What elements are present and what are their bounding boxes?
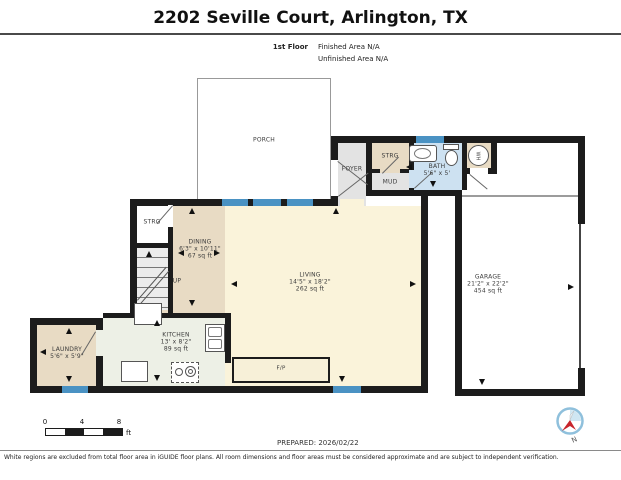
wall [30,386,428,393]
room-area: 262 sq ft [289,286,331,293]
room-name: LAUNDRY [50,346,84,353]
sink-basin [208,339,222,349]
wall [455,196,462,396]
porch-label: PORCH [253,137,275,144]
stairs-up-arrow [146,251,152,257]
dimension-arrow [339,376,345,382]
room-name: DINING [179,239,221,246]
finished-area: Finished Area N/A [318,43,380,51]
dimension-arrow [189,208,195,214]
wall [366,190,462,196]
room-area: 89 sq ft [161,346,192,353]
dimension-arrow [406,164,412,170]
room-dims: 6'3" x 10'11" [179,246,221,253]
room-name: BATH [424,163,451,170]
mud-label: MUD [383,179,398,186]
window [416,136,444,143]
vanity-sink [414,148,431,159]
door-opening [409,170,414,188]
door-opening [331,160,338,196]
wall [421,196,428,393]
dimension-arrow [333,208,339,214]
door-opening [340,199,364,206]
prepared-date: PREPARED: 2026/02/22 [277,439,359,447]
foyer-room [338,143,366,206]
dimension-arrow [568,284,574,290]
scale-tick: 8 [117,418,121,426]
floorplan-page: 2202 Seville Court, Arlington, TX 1st Fl… [0,0,621,480]
window [222,199,248,206]
wall [462,143,467,190]
wall [455,389,585,396]
compass-icon: N [552,404,588,446]
title-divider [0,33,621,35]
kitchen-island [121,361,148,382]
room-dims: 14'5" x 18'2" [289,279,331,286]
stairs-up-label: UP [173,278,181,285]
door-opening [470,168,488,174]
garage-label: GARAGE 21'2" x 22'2" 454 sq ft [467,274,509,295]
page-title: 2202 Seville Court, Arlington, TX [0,8,621,28]
water-heater: WH [468,145,489,166]
dimension-arrow [479,379,485,385]
stove-burner [175,368,183,376]
wall [578,136,585,224]
footer-divider [0,450,621,451]
room-dims: 5'6" x 5' [424,170,451,177]
unfinished-area: Unfinished Area N/A [318,55,388,63]
room-name: LIVING [289,272,331,279]
garage-interior-line [462,195,578,197]
living-label: LIVING 14'5" x 18'2" 262 sq ft [289,272,331,293]
window [287,199,313,206]
storage-top-label: STRG [381,153,398,160]
wall [103,313,225,318]
window [62,386,88,393]
room-dims: 21'2" x 22'2" [467,281,509,288]
wall [130,199,137,318]
sink-basin [208,327,222,337]
dimension-arrow [154,320,160,326]
dimension-arrow [231,281,237,287]
dimension-arrow [189,300,195,306]
wall [225,313,231,363]
door-opening [96,330,103,356]
window [333,386,361,393]
foyer-label: FOYER [342,166,362,173]
room-dims: 5'6" x 5'9" [50,353,84,360]
scale-tick: 4 [80,418,84,426]
wall [30,318,37,393]
room-name: GARAGE [467,274,509,281]
dimension-arrow [66,376,72,382]
fireplace-label: F/P [277,366,286,373]
floor-label: 1st Floor [273,43,308,51]
laundry-label: LAUNDRY 5'6" x 5'9" [50,346,84,360]
wall [30,318,103,325]
dining-label: DINING 6'3" x 10'11" 67 sq ft [179,239,221,260]
door-swing [469,174,487,190]
room-dims: 13' x 8'2" [161,339,192,346]
storage-left-label: STRG [143,219,160,226]
scale-tick: 0 [43,418,47,426]
dimension-arrow [154,375,160,381]
compass-north-label: N [570,435,578,444]
scale-unit: ft [126,429,131,437]
kitchen-label: KITCHEN 13' x 8'2" 89 sq ft [161,332,192,353]
scale-bar [45,428,123,436]
stove-burner [188,369,193,374]
dimension-arrow [40,349,46,355]
disclaimer-text: White regions are excluded from total fl… [4,454,617,461]
window [253,199,281,206]
water-heater-label: WH [474,152,480,161]
dimension-arrow [66,328,72,334]
wall [331,136,585,143]
room-name: KITCHEN [161,332,192,339]
dimension-arrow [410,281,416,287]
bath-label: BATH 5'6" x 5' [424,163,451,177]
garage-door-line [579,224,581,368]
room-area: 67 sq ft [179,253,221,260]
wall [130,243,173,248]
dimension-arrow [430,181,436,187]
room-area: 454 sq ft [467,288,509,295]
